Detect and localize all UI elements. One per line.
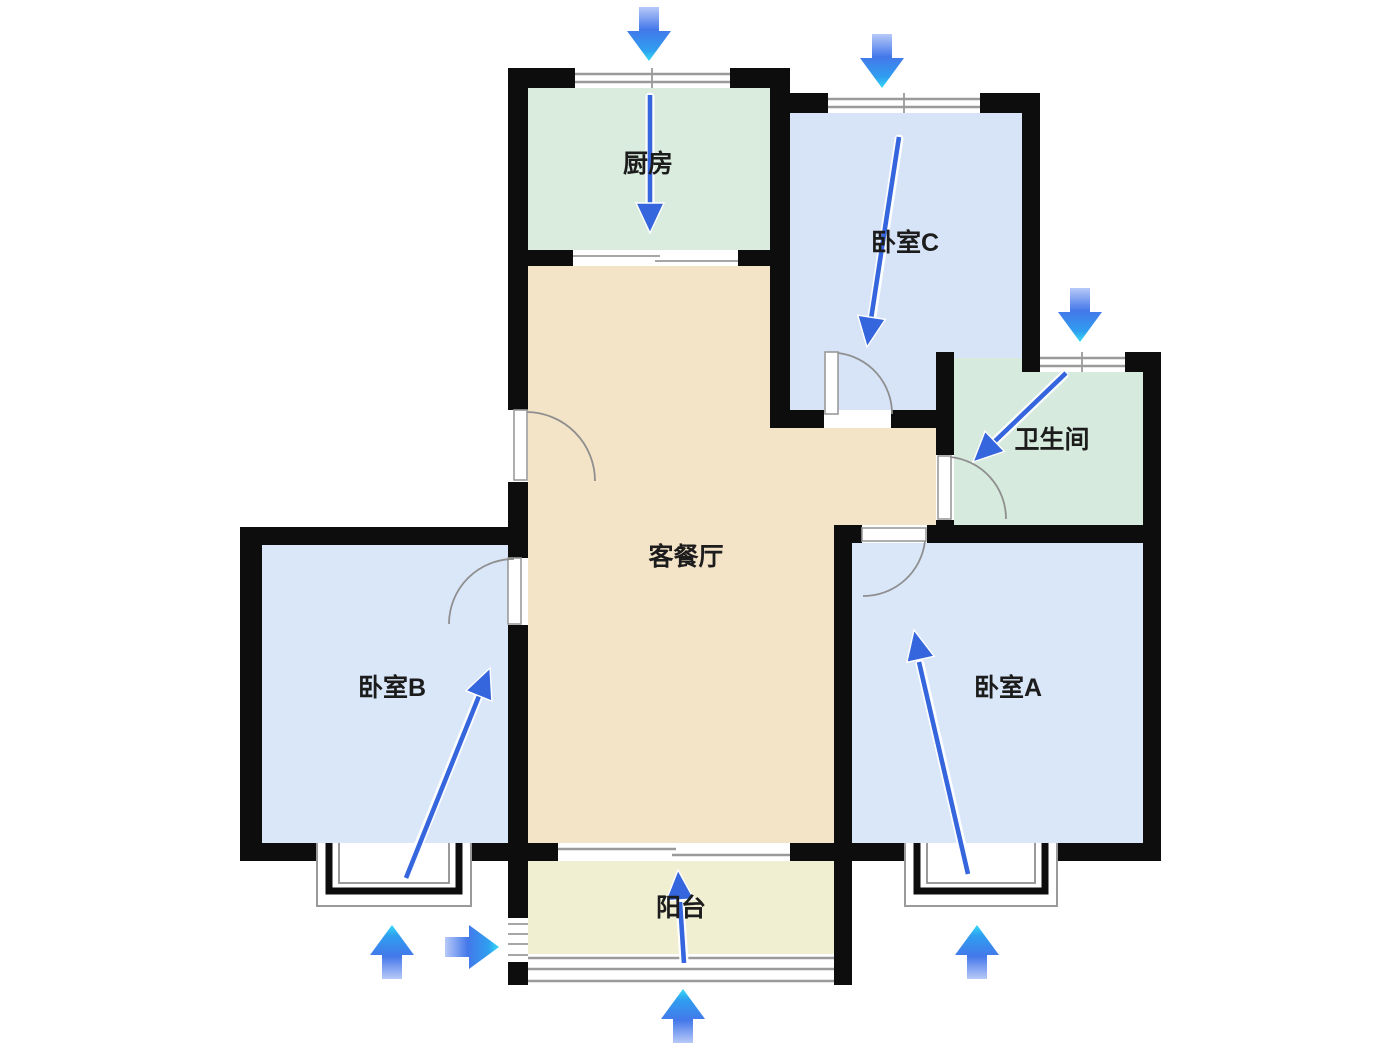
balcony-bottom-arrow-icon xyxy=(661,989,705,1043)
living-dining-label: 客餐厅 xyxy=(648,542,723,571)
kitchen-label: 厨房 xyxy=(623,149,673,178)
bedroom-c-label: 卧室C xyxy=(871,228,939,257)
floor-plan-svg: 厨房 卧室C 卫生间 客餐厅 卧室B 卧室A 阳台 xyxy=(0,0,1400,1050)
bedroom-c-window-arrow-icon xyxy=(860,34,904,88)
kitchen-window-arrow-icon xyxy=(627,7,671,61)
balcony-side-window xyxy=(508,918,528,962)
balcony-label: 阳台 xyxy=(656,893,706,922)
bedroom-a-bay-arrow-icon xyxy=(955,925,999,979)
bedroom-a-label: 卧室A xyxy=(974,673,1042,702)
floor-plan-page: 厨房 卧室C 卫生间 客餐厅 卧室B 卧室A 阳台 xyxy=(0,0,1400,1050)
kitchen-window xyxy=(575,68,730,88)
bedroom-b-bay-window xyxy=(316,843,472,907)
bedroom-c-window xyxy=(828,93,980,113)
bathroom-label: 卫生间 xyxy=(1014,426,1089,454)
bathroom-window xyxy=(1040,352,1125,372)
bathroom-window-arrow-icon xyxy=(1058,288,1102,342)
bedroom-a-bay-window xyxy=(904,843,1058,907)
bedroom-b-bay-arrow-icon xyxy=(370,925,414,979)
bedroom-b-label: 卧室B xyxy=(358,673,426,702)
kitchen-opening xyxy=(573,250,738,266)
balcony-sliding-door xyxy=(558,843,790,861)
balcony-side-arrow-icon xyxy=(445,925,499,969)
